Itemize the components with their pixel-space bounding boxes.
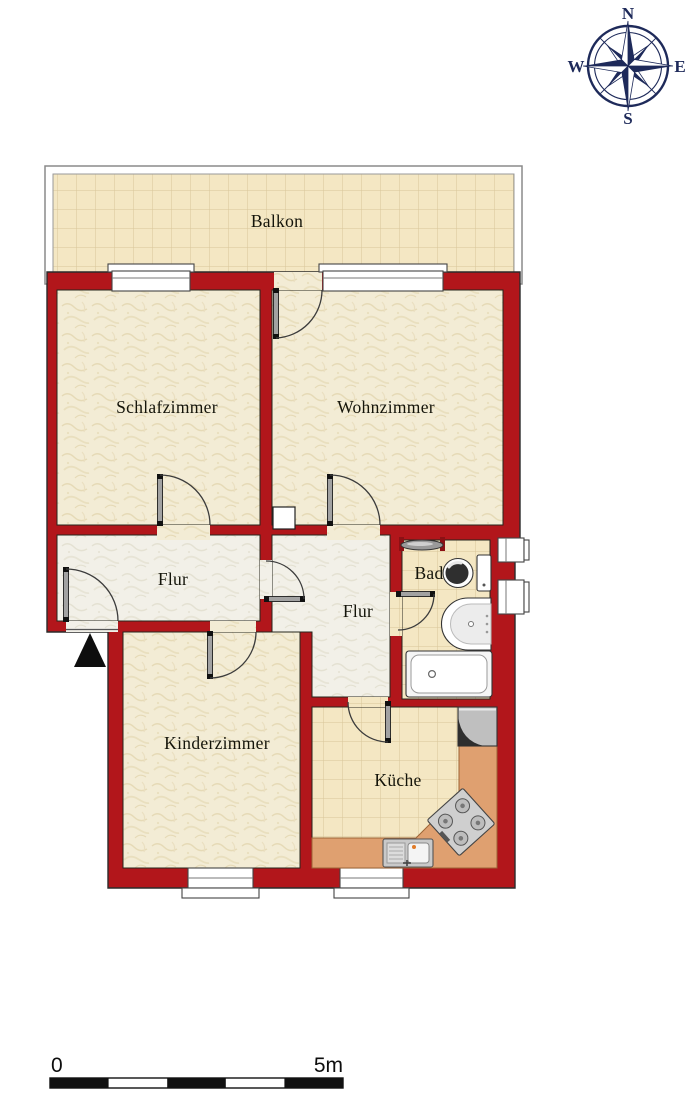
label-kueche: Küche: [374, 770, 421, 790]
compass-west-label: W: [568, 57, 585, 76]
floor-plan-canvas: Balkon Schlafzimmer Wohnzimmer Flur Flur…: [0, 0, 700, 1110]
label-schlafzimmer: Schlafzimmer: [116, 397, 218, 417]
kitchen-sink-icon: [383, 839, 433, 867]
window-kueche: [334, 868, 409, 898]
shaft: [273, 507, 295, 529]
scale-start-label: 0: [51, 1054, 63, 1077]
refrigerator-icon: [458, 707, 497, 746]
window-bad-south: [498, 580, 529, 614]
window-kinderzimmer: [182, 868, 259, 898]
label-bad: Bad: [414, 563, 443, 583]
label-kinderzimmer: Kinderzimmer: [164, 733, 270, 753]
window-wohnzimmer: [319, 264, 447, 291]
compass-east-label: E: [674, 57, 685, 76]
compass-north-label: N: [622, 4, 635, 23]
compass-south-label: S: [623, 109, 632, 128]
scale-bar: 0 5m: [50, 1054, 343, 1088]
label-balkon: Balkon: [251, 211, 303, 231]
compass-rose-icon: N E S W: [568, 4, 686, 128]
window-schlafzimmer: [108, 264, 194, 291]
bathtub-icon: [406, 651, 492, 697]
label-flur-left: Flur: [158, 569, 188, 589]
window-bad-north: [498, 538, 529, 562]
label-flur-right: Flur: [343, 601, 373, 621]
label-wohnzimmer: Wohnzimmer: [337, 397, 435, 417]
scale-end-label: 5m: [314, 1054, 343, 1077]
entrance-arrow-icon: [74, 633, 106, 667]
sink-icon: [442, 598, 492, 650]
